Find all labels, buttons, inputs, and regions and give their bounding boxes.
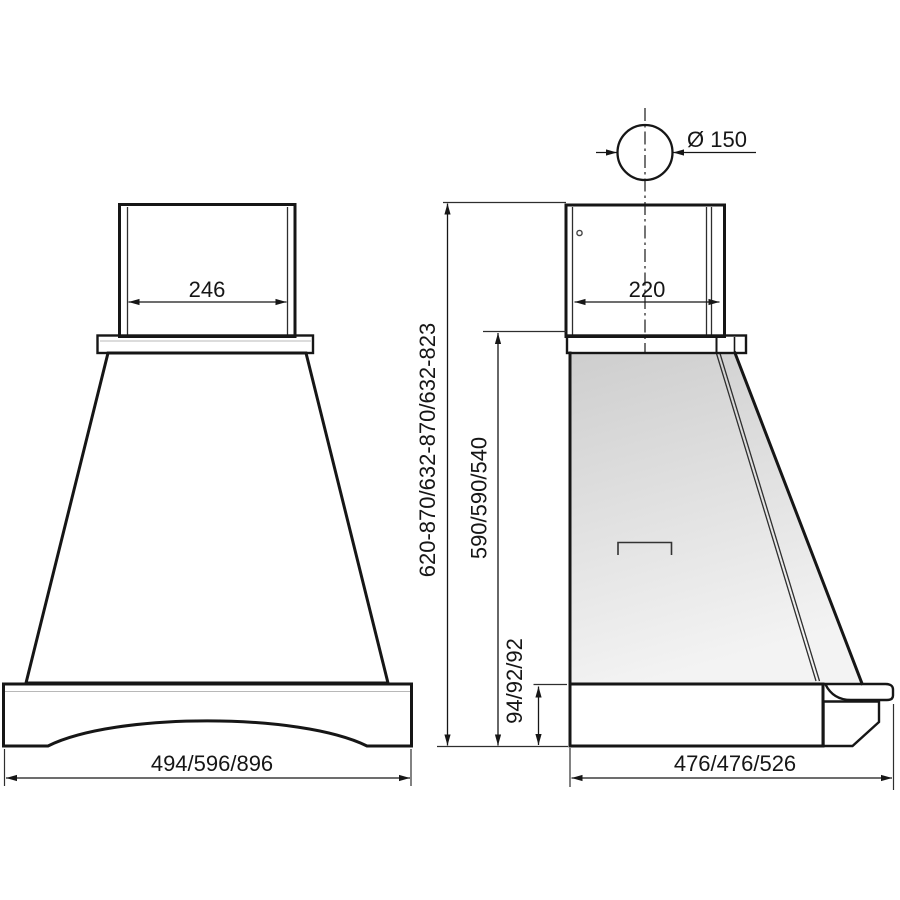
front-chimney-width-value: 246 — [189, 277, 226, 302]
side-view: Ø 150 220 476/476/52 — [566, 108, 894, 790]
side-chimney-depth-value: 220 — [629, 277, 666, 302]
total-height-value: 620-870/632-870/632-823 — [415, 323, 440, 577]
hood-dimension-diagram: 246 494/596/896 Ø 150 — [0, 0, 900, 900]
front-chimney-width-dimension: 246 — [129, 277, 287, 302]
base-height-dimension: 94/92/92 — [502, 638, 567, 745]
front-width-dimension: 494/596/896 — [5, 749, 412, 786]
diagram-canvas: 246 494/596/896 Ø 150 — [0, 0, 900, 900]
duct-diameter-value: Ø 150 — [687, 127, 747, 152]
side-canopy — [570, 353, 862, 683]
front-view: 246 494/596/896 — [4, 205, 412, 787]
side-base — [570, 684, 823, 746]
front-shelf — [98, 336, 314, 354]
base-height-value: 94/92/92 — [502, 638, 527, 724]
side-depth-value: 476/476/526 — [674, 751, 796, 776]
front-width-value: 494/596/896 — [151, 751, 273, 776]
side-chimney-depth-dimension: 220 — [575, 277, 720, 302]
side-base-corbel — [824, 702, 880, 747]
screw-hole — [577, 230, 582, 235]
canopy-height-value: 590/590/540 — [467, 437, 492, 559]
front-canopy — [26, 353, 388, 683]
front-chimney — [120, 205, 296, 337]
side-shelf — [567, 336, 746, 354]
side-base-moulding-strip — [824, 684, 894, 700]
side-chimney — [566, 205, 725, 337]
height-dimensions: 620-870/632-870/632-823 590/590/540 94/9… — [415, 203, 568, 747]
front-base-valance — [4, 684, 412, 746]
